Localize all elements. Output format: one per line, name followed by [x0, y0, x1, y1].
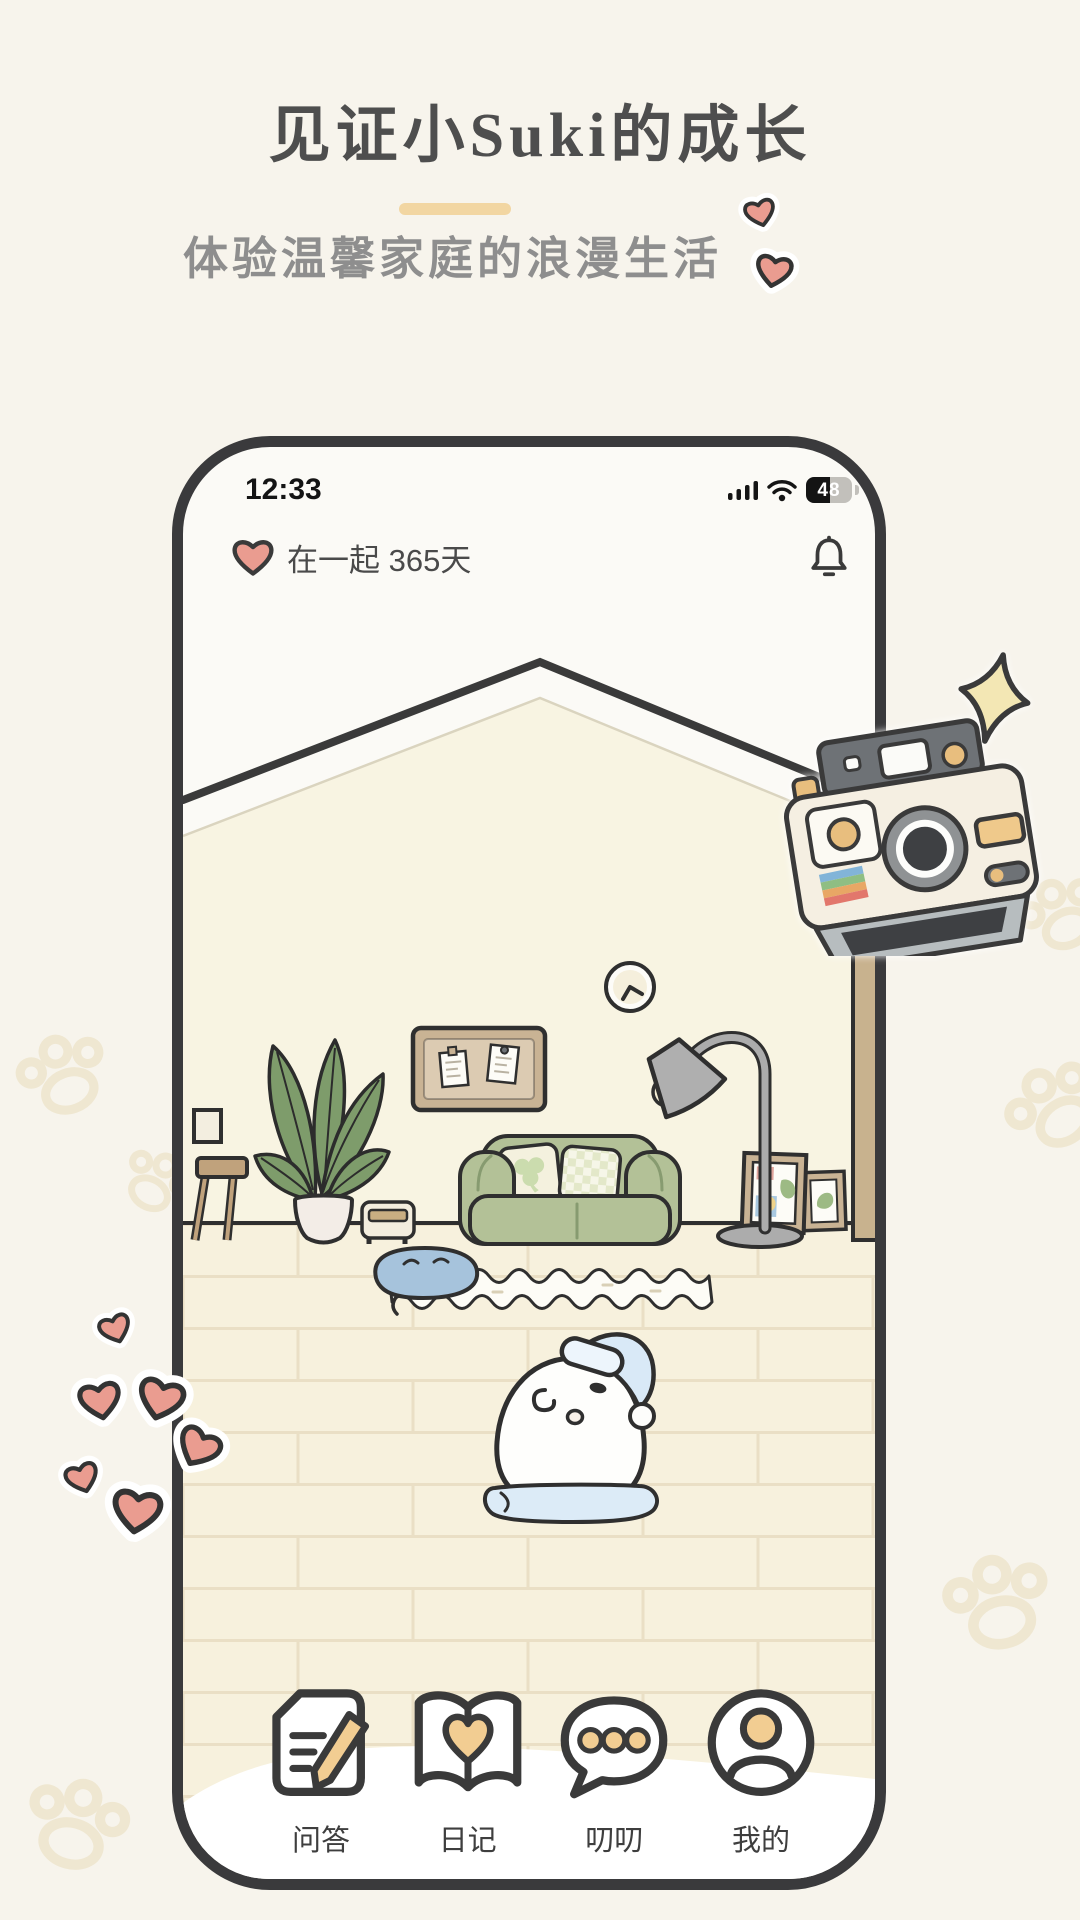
nav-label: 问答	[292, 1817, 350, 1859]
battery-percent: 48	[806, 477, 852, 503]
heart-sticker-icon	[744, 242, 804, 298]
pinboard	[413, 1028, 545, 1110]
green-sofa	[460, 1136, 680, 1244]
cushion	[485, 1485, 657, 1522]
chat-bubble-icon	[546, 1677, 682, 1813]
status-icons: 48	[728, 477, 859, 503]
nav-item-diary[interactable]: 日记	[400, 1677, 536, 1859]
nav-label: 叨叨	[585, 1817, 643, 1859]
heart-sticker-icon	[66, 1367, 135, 1432]
relationship-days-label: 在一起 365天	[287, 535, 471, 580]
qa-paper-pencil-icon	[253, 1677, 389, 1813]
title-underline	[399, 203, 511, 215]
diary-book-heart-icon	[400, 1677, 536, 1813]
nav-item-chat[interactable]: 叨叨	[546, 1677, 682, 1859]
wall-clock	[606, 963, 654, 1011]
status-time: 12:33	[245, 473, 322, 507]
battery-icon: 48	[806, 477, 852, 503]
toaster	[362, 1202, 414, 1244]
app-header[interactable]: 在一起 365天	[231, 531, 849, 583]
nav-item-qa[interactable]: 问答	[253, 1677, 389, 1859]
hearts-sticker-cluster	[40, 1290, 260, 1590]
wifi-icon	[767, 478, 797, 502]
profile-icon	[693, 1677, 829, 1813]
paw-print-icon	[1, 1014, 127, 1137]
paw-print-icon	[983, 1037, 1080, 1177]
promo-screenshot: 见证小Suki的成长 体验温馨家庭的浪漫生活 12:33 48 在一起 365天	[0, 0, 1080, 1920]
heart-sticker-icon	[98, 1473, 176, 1546]
page-title: 见证小Suki的成长	[0, 84, 1080, 174]
paw-print-icon	[930, 1537, 1066, 1669]
paw-print-icon	[8, 1759, 144, 1890]
heart-icon	[231, 537, 275, 577]
battery-nub	[855, 485, 859, 495]
signal-icon	[728, 478, 758, 502]
nav-label: 日记	[439, 1817, 497, 1859]
heart-sticker-icon	[86, 1300, 144, 1355]
nav-bar: 问答 日记 叨叨	[253, 1677, 829, 1859]
nav-label: 我的	[732, 1817, 790, 1859]
bell-icon[interactable]	[809, 535, 849, 579]
polaroid-camera-sticker	[766, 646, 1066, 956]
nav-item-me[interactable]: 我的	[693, 1677, 829, 1859]
